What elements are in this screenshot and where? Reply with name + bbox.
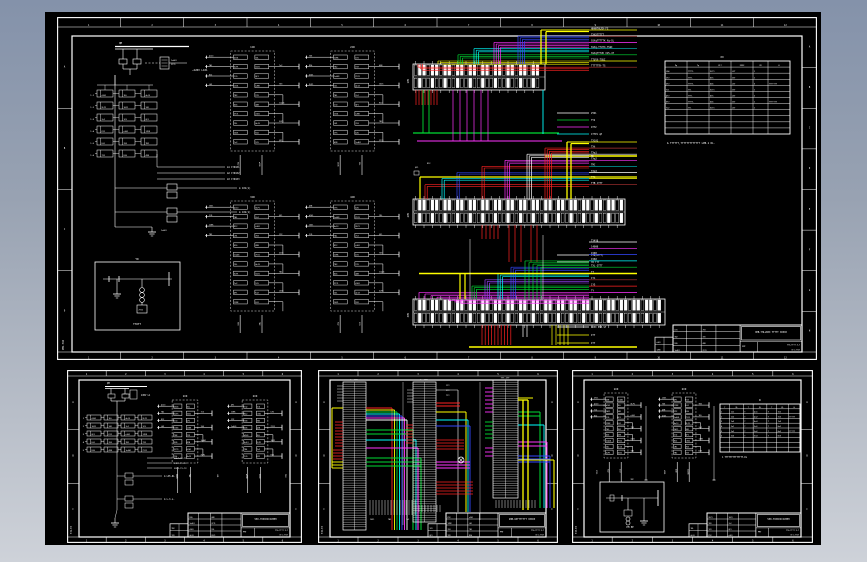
svg-text:4XB: 4XB	[309, 206, 312, 208]
svg-text:TTL: TTL	[688, 89, 692, 91]
svg-text:K12: K12	[448, 517, 451, 519]
svg-text:TX101: TX101	[591, 139, 599, 142]
svg-text:XLP1: XLP1	[174, 413, 178, 415]
svg-text:TYJ: TYJ	[446, 395, 449, 397]
svg-text:ITT: ITT	[591, 334, 596, 337]
svg-text:703: 703	[109, 442, 112, 444]
svg-text:d101: d101	[234, 57, 238, 59]
svg-text:d101: d101	[336, 162, 338, 166]
svg-text:4n13: 4n13	[255, 123, 259, 125]
svg-text:1n2: 1n2	[731, 416, 734, 418]
svg-text:703: 703	[703, 330, 706, 332]
svg-text:K12: K12	[109, 434, 112, 436]
cad-preview-stage: 123456789101112123456789101112ABCDABCDEF…	[0, 0, 867, 562]
svg-text:1: 1	[754, 108, 756, 110]
svg-text:2YJ1: 2YJ1	[594, 398, 598, 400]
svg-text:1n401: 1n401	[606, 441, 612, 443]
svg-text:n301: n301	[255, 226, 259, 228]
svg-text:1DL: 1DL	[334, 86, 338, 88]
svg-text:5n2: 5n2	[754, 431, 757, 433]
svg-text:1YD: 1YD	[407, 78, 410, 83]
svg-text:2YJ1: 2YJ1	[355, 76, 359, 78]
svg-text:7n2: 7n2	[234, 142, 237, 144]
svg-text:4n13: 4n13	[618, 447, 622, 449]
svg-text:XLP1: XLP1	[379, 290, 383, 292]
svg-text:LH1: LH1	[271, 412, 274, 414]
svg-text:D26: D26	[469, 535, 472, 537]
svg-text:D26: D26	[124, 155, 127, 157]
svg-text:3: 3	[672, 373, 674, 376]
svg-text:TTUTT: TTUTT	[133, 322, 141, 326]
svg-text:4XB: 4XB	[146, 155, 150, 157]
cable-ladder-3	[493, 380, 518, 498]
svg-text:A: A	[577, 401, 579, 404]
svg-text:TA1: TA1	[334, 94, 337, 97]
svg-text:K12: K12	[234, 226, 237, 228]
svg-text:7n2: 7n2	[594, 409, 597, 411]
svg-text:LXT: LXT	[732, 83, 736, 85]
svg-text:TXq1: TXq1	[591, 152, 597, 155]
svg-text:H: H	[794, 407, 796, 409]
svg-text:2YJ1: 2YJ1	[686, 417, 690, 419]
svg-text:2YJ1: 2YJ1	[618, 441, 622, 443]
svg-text:2: 2	[754, 96, 755, 98]
svg-text:5: 5	[341, 24, 343, 27]
svg-text:XLP1: XLP1	[686, 423, 690, 425]
svg-text:A: A	[551, 401, 553, 404]
svg-text:QF1: QF1	[618, 417, 621, 419]
svg-text:1021: 1021	[606, 411, 610, 413]
svg-text:1CD: 1CD	[257, 406, 260, 408]
svg-text:1n401: 1n401	[379, 272, 384, 274]
svg-text:3YD: 3YD	[407, 312, 410, 317]
svg-text:XLP1: XLP1	[102, 107, 106, 109]
svg-text:YJ3-TX: YJ3-TX	[575, 525, 578, 534]
sheet-main: 123456789101112123456789101112ABCDABCDEF…	[57, 17, 817, 360]
svg-text:1YX: 1YX	[686, 452, 690, 454]
svg-text:1021: 1021	[255, 67, 259, 69]
svg-text:XLP1: XLP1	[211, 535, 215, 537]
svg-text:TA1: TA1	[618, 410, 621, 413]
svg-text:D26: D26	[355, 133, 358, 135]
svg-text:4n13: 4n13	[255, 264, 259, 266]
svg-text:TB2: TB2	[334, 264, 337, 266]
svg-text:7n2: 7n2	[244, 406, 247, 408]
svg-text:2: 2	[721, 416, 722, 418]
svg-text:B: B	[64, 147, 66, 150]
svg-text:H: H	[809, 330, 811, 333]
svg-text:4n13: 4n13	[355, 86, 359, 88]
svg-text:2n1: 2n1	[731, 426, 735, 428]
svg-text:TTL: TTL	[688, 108, 692, 110]
svg-text:14000: 14000	[591, 246, 599, 249]
svg-text:TB2: TB2	[699, 403, 702, 405]
svg-text:QF1: QF1	[430, 535, 433, 537]
svg-text:703: 703	[662, 404, 665, 406]
svg-text:TA1: TA1	[234, 216, 237, 219]
svg-text:1YX: 1YX	[187, 435, 191, 437]
svg-text:T: T	[768, 416, 770, 418]
svg-text:B: B	[809, 86, 811, 89]
svg-text:1CD: 1CD	[709, 529, 712, 531]
svg-text:550-YXXXXIIIJHHH: 550-YXXXXIIIJHHH	[254, 518, 277, 521]
svg-text:2YJ1: 2YJ1	[355, 217, 359, 219]
svg-text:1YX: 1YX	[674, 411, 678, 413]
svg-text:QF1: QF1	[729, 529, 732, 531]
svg-text:1n401: 1n401	[171, 60, 178, 62]
svg-text:TA1: TA1	[109, 425, 112, 428]
svg-text:PMT: PMT	[758, 532, 762, 534]
svg-text:7n2: 7n2	[279, 65, 282, 67]
svg-text:TTTTL: TTTTL	[688, 71, 695, 73]
svg-text:d101: d101	[174, 406, 178, 408]
svg-text:TB2: TB2	[146, 143, 149, 145]
svg-text:QM: QM	[119, 41, 123, 45]
svg-text:1n401: 1n401	[675, 350, 680, 352]
svg-text:D26: D26	[355, 207, 358, 209]
wire-bundle: HHHHTHLRX-FSTXXXTTTTTSSXqTTTTTK Xq-SLSSX…	[418, 27, 637, 70]
svg-text:4n13: 4n13	[209, 56, 213, 58]
svg-text:1DL: 1DL	[618, 405, 622, 407]
svg-text:TTTTL: TTTTL	[688, 83, 695, 85]
svg-text:7n2: 7n2	[234, 283, 237, 285]
svg-text:TB2: TB2	[379, 121, 382, 123]
svg-text:d101: d101	[663, 470, 665, 474]
svg-text:QF1: QF1	[231, 405, 234, 407]
svg-text:XLP1: XLP1	[143, 418, 147, 420]
svg-text:1CD: 1CD	[234, 76, 237, 78]
svg-text:TTTTTTK-TS: TTTTTTK-TS	[591, 65, 606, 68]
svg-text:TB2: TB2	[469, 529, 472, 531]
svg-text:1CD: 1CD	[619, 469, 621, 472]
svg-text:1CD: 1CD	[674, 435, 677, 437]
svg-text:703: 703	[244, 421, 247, 423]
svg-text:1ZKK: 1ZKK	[334, 57, 339, 59]
svg-text:1ZKK: 1ZKK	[258, 474, 260, 479]
svg-text:1YX: 1YX	[102, 155, 106, 157]
svg-text:T: T	[744, 431, 746, 433]
svg-text:TA1: TA1	[631, 450, 634, 453]
svg-text:QF1: QF1	[379, 234, 382, 236]
svg-text:D26: D26	[309, 65, 312, 67]
svg-text:n301: n301	[126, 434, 130, 436]
title-block: n3011ZKKLH1703TB21YXD264XB1n4012YJ1XHB-Y…	[655, 325, 802, 352]
svg-text:n301: n301	[174, 428, 178, 430]
svg-text:B: B	[72, 455, 74, 458]
svg-text:n301: n301	[245, 474, 247, 478]
svg-text:m 101(1): m 101(1)	[239, 187, 251, 190]
svg-text:TA1: TA1	[334, 235, 337, 238]
sheet-bottom-left-drawing: 123456123456ABCABCQM220V L11d1011DL4n13X…	[67, 370, 302, 543]
svg-text:PMT: PMT	[243, 532, 247, 534]
svg-text:1YX: 1YX	[172, 535, 175, 537]
svg-text:8n2: 8n2	[778, 431, 781, 433]
svg-text:1021: 1021	[271, 440, 275, 442]
svg-text:d101: d101	[606, 405, 610, 407]
svg-text:PMT: PMT	[742, 346, 746, 348]
svg-text:1YX: 1YX	[448, 535, 451, 537]
svg-text:TTTTTTT: TTTTTTT	[769, 83, 778, 85]
grid-ref-labels: m1 1YD101m2 1YD102m3 1YD103	[157, 154, 240, 181]
svg-text:3: 3	[417, 373, 419, 376]
svg-text:6: 6	[721, 436, 723, 438]
strip2-under-wiring: QF1K12JTB(RTTT)TB TTT	[414, 163, 637, 264]
svg-text:TB2: TB2	[675, 336, 678, 338]
svg-text:XLP1: XLP1	[309, 84, 313, 86]
svg-text:TXt: TXt	[591, 145, 596, 148]
cable-ladder-2	[413, 382, 436, 522]
svg-text:C: C	[323, 508, 325, 511]
svg-text:LH1: LH1	[469, 523, 472, 525]
svg-text:1CD: 1CD	[614, 387, 619, 391]
svg-text:1YX: 1YX	[355, 67, 359, 69]
svg-text:1CD: 1CD	[250, 45, 255, 49]
svg-text:3: 3	[215, 24, 217, 27]
svg-text:1ZKK: 1ZKK	[334, 255, 339, 257]
svg-text:7n2: 7n2	[336, 322, 338, 325]
svg-text:4n13: 4n13	[187, 456, 191, 458]
svg-text:7n2: 7n2	[255, 217, 258, 219]
terminal-strip-3	[413, 296, 665, 328]
svg-text:5n1: 5n1	[754, 426, 758, 428]
svg-text:1CD: 1CD	[309, 234, 312, 236]
svg-text:1n401: 1n401	[234, 255, 240, 257]
svg-text:m L-h.L-: m L-h.L-	[164, 498, 175, 501]
svg-text:5: 5	[752, 373, 754, 376]
svg-text:LH1: LH1	[255, 302, 258, 304]
svg-text:QF1: QF1	[279, 215, 282, 217]
svg-text:D26: D26	[190, 517, 193, 519]
svg-text:TB2: TB2	[257, 421, 260, 423]
svg-text:TL2: TL2	[666, 108, 669, 110]
svg-text:TB2: TB2	[126, 442, 129, 444]
svg-text:XLP1: XLP1	[355, 226, 359, 228]
svg-text:B: B	[806, 455, 808, 458]
svg-text:PM PP: PM PP	[626, 526, 634, 529]
svg-text:TB2: TB2	[209, 234, 212, 236]
svg-text:~220V L101: ~220V L101	[192, 68, 208, 72]
svg-text:LH1: LH1	[686, 405, 689, 407]
svg-text:1n401: 1n401	[231, 426, 236, 428]
svg-text:m3 1YD103: m3 1YD103	[227, 178, 240, 181]
svg-text:1CD: 1CD	[255, 142, 258, 144]
svg-text:T: T	[768, 412, 770, 414]
svg-text:1ZKK: 1ZKK	[187, 428, 192, 430]
svg-text:1DL: 1DL	[124, 95, 128, 97]
svg-text:XLP1: XLP1	[631, 403, 635, 405]
svg-text:1XT: 1XT	[732, 102, 736, 104]
svg-text:XXLP-TX-TX: XXLP-TX-TX	[174, 468, 187, 470]
svg-text:1: 1	[591, 373, 593, 376]
svg-text:1T1-TT1T: 1T1-TT1T	[279, 535, 289, 537]
svg-text:4: 4	[721, 426, 723, 428]
svg-text:K12: K12	[709, 535, 712, 537]
svg-text:m1 1YD101: m1 1YD101	[227, 166, 240, 169]
svg-text:D26: D26	[675, 343, 678, 345]
strip3-under-wiring: XXXX PhB-SYITTITT	[419, 235, 637, 347]
svg-text:HHHHTHLRX-FS: HHHHTHLRX-FS	[591, 27, 609, 30]
svg-text:LH1: LH1	[334, 123, 337, 125]
svg-text:TTTL: TTTL	[688, 77, 693, 79]
svg-text:LH1: LH1	[355, 57, 358, 59]
terminal-module: 1CD4XB1n4012YJ1d1011DL4n13XLP11021TA17n2…	[590, 387, 641, 482]
svg-text:1CD: 1CD	[334, 104, 337, 106]
svg-text:1ZKK: 1ZKK	[606, 423, 611, 425]
svg-text:7n2: 7n2	[102, 119, 105, 121]
svg-text:XLT1: XLT1	[710, 71, 715, 73]
svg-text:QM: QM	[107, 382, 110, 385]
sheet-bottom-left: 123456123456ABCABCQM220V L11d1011DL4n13X…	[67, 370, 302, 543]
svg-text:XXLP-TX-TX: XXLP-TX-TX	[174, 463, 187, 465]
svg-text:d101: d101	[355, 283, 359, 285]
svg-text:C: C	[551, 508, 553, 511]
svg-text:2YJ1: 2YJ1	[595, 470, 597, 474]
sheet-main-drawing: 123456789101112123456789101112ABCDABCDEF…	[57, 17, 817, 360]
svg-text:1ZKK: 1ZKK	[657, 350, 662, 352]
svg-text:1YJ: 1YJ	[446, 385, 449, 387]
svg-text:T: T	[768, 436, 770, 438]
svg-text:A: A	[64, 66, 66, 69]
svg-text:XLT1: XLT1	[710, 89, 715, 91]
svg-text:LH1: LH1	[92, 442, 95, 444]
svg-text:LH1: LH1	[161, 426, 164, 428]
svg-text:LH1: LH1	[355, 255, 358, 257]
title-block: 1CDQF1K12n3011ZKKLH1703TB21YXD262HB-UXTT…	[428, 513, 546, 537]
svg-text:TTTTTTT: TTTTTTT	[769, 102, 778, 104]
svg-text:n301: n301	[686, 441, 690, 443]
svg-text:7n2: 7n2	[126, 426, 129, 428]
svg-text:2: 2	[125, 373, 127, 376]
svg-text:QF1: QF1	[257, 456, 260, 458]
svg-text:XHB-YHLLBXX TTTTT XXXXX: XHB-YHLLBXX TTTTT XXXXX	[755, 331, 787, 334]
svg-text:4: 4	[457, 373, 459, 376]
svg-text:2YJ1: 2YJ1	[171, 64, 176, 66]
svg-text:1CD: 1CD	[430, 528, 433, 530]
svg-text:D26: D26	[234, 104, 237, 106]
svg-text:3CD: 3CD	[250, 195, 255, 199]
svg-text:LXT: LXT	[732, 96, 736, 98]
svg-text:1CD: 1CD	[606, 417, 609, 419]
svg-text:8: 8	[531, 24, 533, 27]
svg-text:1n401: 1n401	[190, 523, 195, 525]
svg-text:1n1: 1n1	[731, 412, 735, 414]
svg-text:K12: K12	[161, 419, 164, 421]
svg-text:7n1: 7n1	[778, 412, 782, 414]
svg-text:n301: n301	[334, 114, 338, 116]
svg-text:1Y5: 1Y5	[591, 283, 596, 286]
svg-text:TTTTL: TTTTL	[688, 102, 695, 104]
svg-text:3: 3	[754, 83, 755, 85]
svg-text:D26: D26	[686, 411, 689, 413]
wire-bundle: TX101TXtTXq1TXq2TMCTXq3TTGTTB JTTT	[425, 139, 637, 199]
svg-text:YJ2-TX: YJ2-TX	[321, 525, 324, 534]
svg-text:PMT: PMT	[500, 532, 504, 534]
svg-text:F: F	[809, 248, 811, 251]
svg-text:4: 4	[712, 373, 714, 376]
svg-text:C: C	[295, 508, 297, 511]
svg-text:1ZKK: 1ZKK	[143, 434, 148, 436]
svg-text:n301: n301	[258, 162, 260, 166]
svg-text:2n3: 2n3	[731, 436, 734, 438]
svg-text:3: 3	[83, 434, 85, 436]
svg-text:TTG-TTTT X-T: TTG-TTTT X-T	[786, 530, 800, 532]
svg-text:1n401: 1n401	[334, 76, 340, 78]
svg-text:1DL: 1DL	[691, 528, 694, 530]
svg-text:1021: 1021	[334, 302, 338, 304]
svg-text:1YX: 1YX	[255, 95, 259, 97]
terminal-module: 1CDd1011DL4n13XLP11021TA17n21CDQF1K12n30…	[157, 394, 212, 493]
svg-text:TTG-TTTT X-T: TTG-TTTT X-T	[531, 530, 545, 532]
svg-text:YD: YD	[135, 257, 139, 261]
svg-text:TA1: TA1	[209, 64, 212, 67]
svg-text:K12: K12	[255, 292, 258, 294]
svg-text:1CD: 1CD	[244, 456, 247, 458]
svg-text:QF1: QF1	[355, 104, 358, 106]
svg-text:A: A	[72, 401, 74, 404]
ladder3-wiring	[403, 382, 554, 525]
svg-text:XLP1: XLP1	[606, 452, 610, 454]
svg-text:d101: d101	[631, 439, 635, 441]
svg-text:703: 703	[606, 429, 609, 431]
svg-text:XXXX: XXXX	[740, 65, 745, 67]
svg-text:T: T	[748, 407, 750, 409]
svg-text:1021: 1021	[124, 107, 128, 109]
svg-text:TTTL: TTTL	[688, 96, 693, 98]
svg-text:1YJ: 1YJ	[666, 77, 669, 79]
svg-text:LH1: LH1	[234, 236, 237, 238]
svg-text:1ZKK: 1ZKK	[448, 523, 453, 525]
svg-text:1YX: 1YX	[355, 264, 359, 266]
svg-text:1: 1	[754, 77, 756, 79]
svg-text:4n13: 4n13	[691, 535, 695, 537]
relay-matrix: 1-1d1011DL4n131-2XLP11021TA11-37n21CDQF1…	[90, 90, 157, 157]
svg-text:1: 1	[83, 418, 85, 420]
svg-text:d101: d101	[190, 529, 194, 531]
svg-text:2: 2	[632, 373, 634, 376]
svg-text:8n3: 8n3	[778, 436, 781, 438]
svg-text:G: G	[809, 289, 811, 292]
svg-text:LH1: LH1	[102, 143, 105, 145]
svg-text:TTB JTTT: TTB JTTT	[591, 182, 603, 185]
svg-text:4n2: 4n2	[754, 416, 757, 418]
sheet-bottom-right: 123456123456ABCABC1CD4XB1n4012YJ1d1011DL…	[572, 370, 813, 543]
svg-text:5YJ: 5YJ	[666, 102, 669, 104]
svg-text:4n13: 4n13	[190, 535, 194, 537]
svg-text:1YX: 1YX	[334, 133, 338, 135]
svg-text:QF1: QF1	[279, 140, 282, 142]
svg-text:11: 11	[721, 24, 724, 27]
svg-text:1n-3TY: 1n-3TY	[420, 380, 428, 382]
svg-text:4XB: 4XB	[334, 142, 338, 144]
sheet-bottom-middle-drawing: 123456123456ABCABC1n-1TY1021TA17n21n-3TY…	[318, 370, 558, 543]
svg-text:2HB-UXTTTTTTT XXXXX: 2HB-UXTTTTTTT XXXXX	[509, 518, 536, 521]
svg-text:7n2: 7n2	[778, 416, 781, 418]
svg-text:1XT: 1XT	[732, 89, 736, 91]
svg-text:PM1-TXX: PM1-TXX	[62, 339, 65, 350]
svg-text:TB2: TB2	[258, 322, 260, 325]
svg-text:d101: d101	[92, 418, 96, 420]
svg-text:4XB: 4XB	[255, 245, 259, 247]
svg-text:XLP1: XLP1	[279, 121, 283, 123]
svg-text:QF1: QF1	[92, 434, 95, 436]
svg-text:1CD: 1CD	[183, 394, 188, 398]
svg-text:1: 1	[337, 373, 339, 376]
svg-text:2YJ1: 2YJ1	[379, 140, 383, 142]
svg-text:K12: K12	[686, 399, 689, 401]
svg-text:d101: d101	[662, 415, 666, 417]
svg-text:TB2: TB2	[172, 528, 175, 530]
svg-text:2CD: 2CD	[350, 45, 355, 49]
